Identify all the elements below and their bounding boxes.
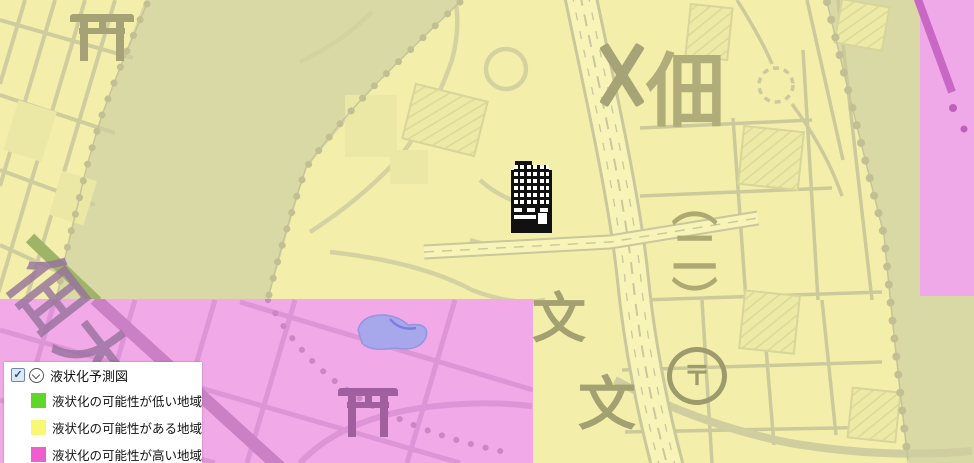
building-marker [511,161,554,233]
shrine-icon [74,14,130,61]
collapse-chevron-icon[interactable] [29,368,44,383]
legend-swatch-possible [31,420,46,435]
legend-item-low: 液状化の可能性が低い地域 [31,389,202,411]
legend-swatch-low [31,393,46,408]
legend-item-high: 液状化の可能性が高い地域 [31,443,202,463]
shrine-icon [342,388,394,437]
legend-label-possible: 液状化の可能性がある地域 [52,418,202,437]
legend-title: 液状化予測図 [50,366,128,385]
legend-label-high: 液状化の可能性が高い地域 [52,445,202,463]
cross-road [424,218,758,252]
legend-swatch-high [31,447,46,462]
legend-label-low: 液状化の可能性が低い地域 [52,391,202,410]
legend-panel: ✓ 液状化予測図 液状化の可能性が低い地域 液状化の可能性がある地域 液状化の可… [4,362,202,463]
map-viewport[interactable]: 佃 （二） 文 文 佃大 〒 ✓ 液状化予測図 液状化の可能性が低い地域 液状化… [0,0,974,463]
layer-checkbox[interactable]: ✓ [11,368,25,382]
zone-high-risk-right [916,0,974,296]
legend-item-possible: 液状化の可能性がある地域 [31,416,202,438]
